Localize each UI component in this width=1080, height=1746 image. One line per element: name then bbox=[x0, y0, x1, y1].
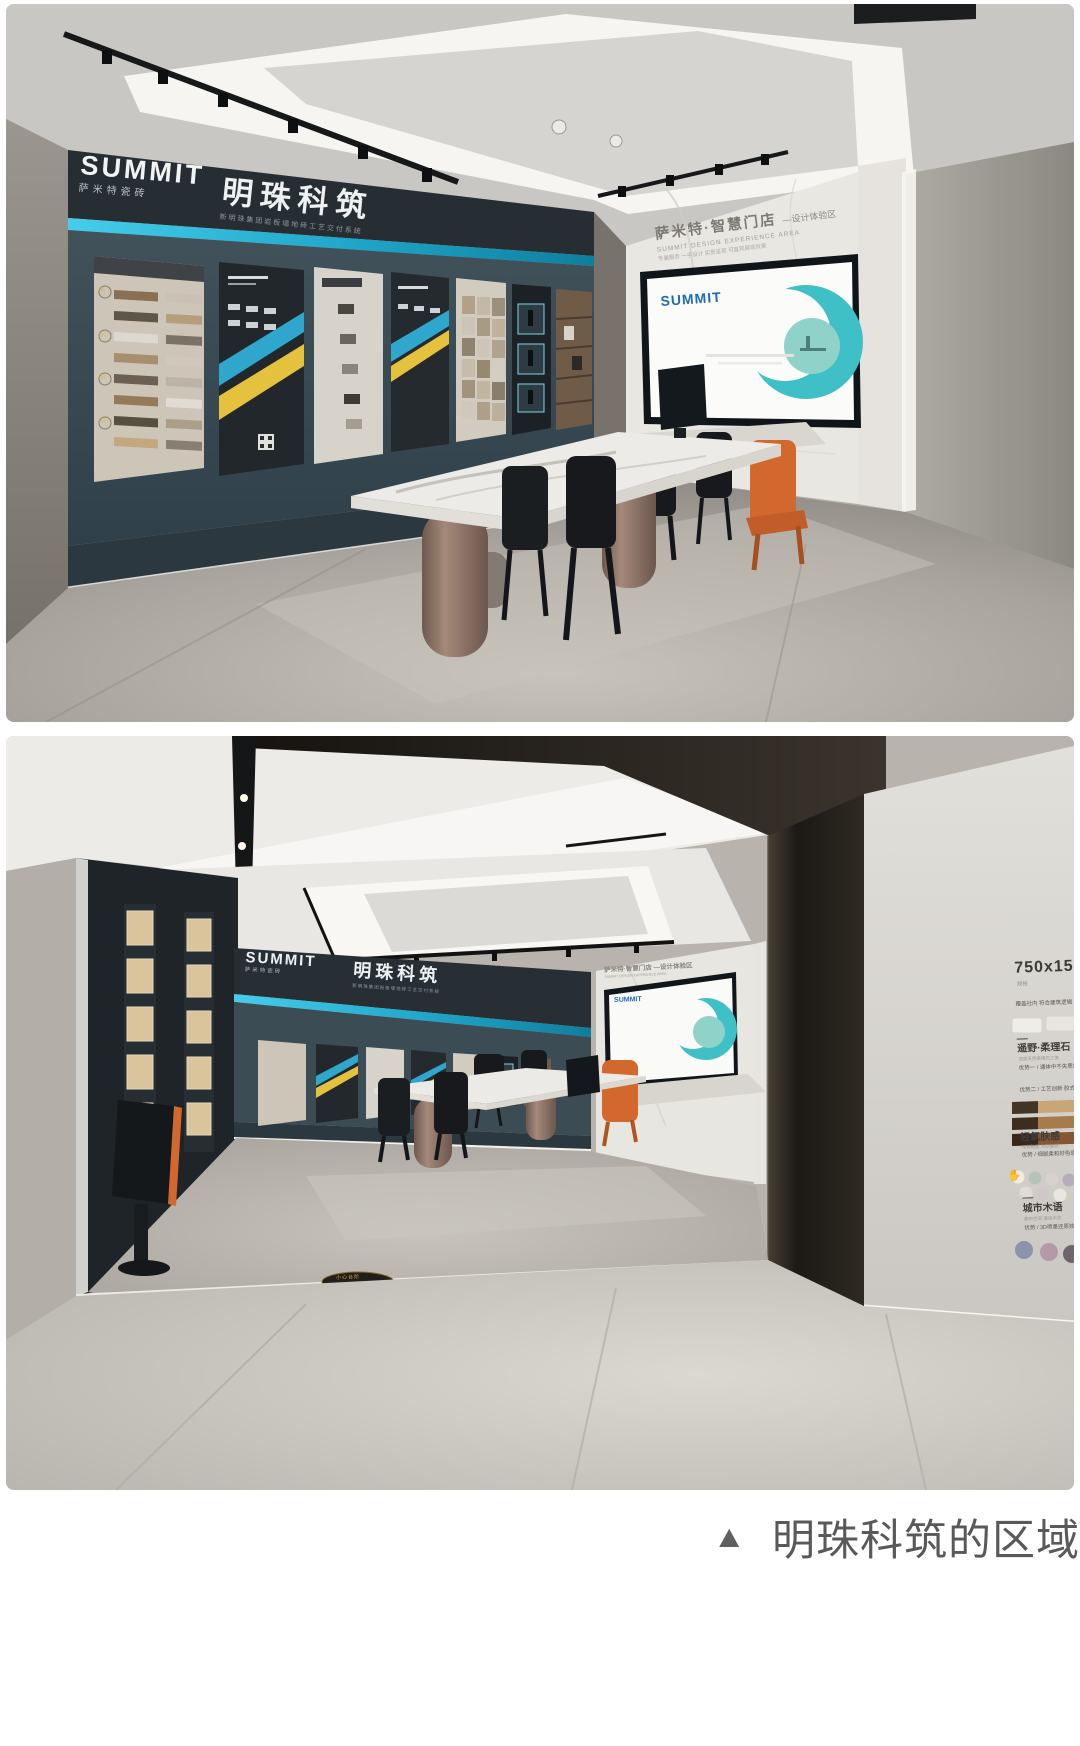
showroom-photo-1[interactable]: SUMMIT 萨米特瓷砖 明珠科筑 新明珠集团岩板墙地砖工艺交付系统 萨米特·智… bbox=[6, 4, 1074, 722]
tile-size-heading: 750x1500 bbox=[1014, 957, 1074, 978]
tv-logo-2: SUMMIT bbox=[614, 996, 642, 1005]
experience-title-suffix-2: —设计体验区 bbox=[653, 962, 692, 971]
board-number-1: 01 bbox=[99, 287, 106, 294]
triangle-marker-icon: ▲ bbox=[712, 1519, 746, 1555]
left-wall bbox=[6, 119, 68, 644]
table-base-left bbox=[422, 509, 488, 657]
right-wall bbox=[906, 142, 1074, 569]
desktop-monitor-2 bbox=[566, 1055, 600, 1097]
section3-title: 城市木语 bbox=[1023, 1202, 1063, 1215]
section2-title: 轻氧肤感 bbox=[1020, 1131, 1060, 1144]
board-number-2: 02 bbox=[99, 331, 106, 338]
experience-title-suffix: —设计体验区 bbox=[782, 209, 837, 226]
hand-icon: ✋ bbox=[1007, 1170, 1021, 1183]
tile-size-sub: 规格 bbox=[1017, 981, 1028, 988]
section1-title: 遥野·柔理石 bbox=[1017, 1042, 1071, 1055]
photo1-scene-illustration bbox=[6, 4, 1074, 722]
outer-left-wall bbox=[6, 858, 76, 1340]
photo2-scene-illustration bbox=[6, 736, 1074, 1490]
studio-sign-2: 明珠科筑 新明珠集团岩板墙地砖工艺交付系统 bbox=[352, 960, 442, 994]
article-page: SUMMIT 萨米特瓷砖 明珠科筑 新明珠集团岩板墙地砖工艺交付系统 萨米特·智… bbox=[0, 0, 1080, 1746]
showroom-photo-2[interactable]: SUMMIT 萨米特瓷砖 明珠科筑 新明珠集团岩板墙地砖工艺交付系统 萨米特·智… bbox=[6, 736, 1074, 1490]
portal-frame bbox=[768, 794, 864, 1314]
board-number-3: 03 bbox=[99, 374, 106, 381]
caption-text: 明珠科筑的区域 bbox=[772, 1506, 1080, 1568]
board-number-4: 04 bbox=[99, 418, 106, 425]
floor-sign-text: 小心台阶 bbox=[336, 1275, 360, 1282]
summit-sign-2: SUMMIT 萨米特瓷砖 bbox=[245, 949, 318, 978]
photo-caption: ▲ 明珠科筑的区域 bbox=[712, 1506, 1080, 1568]
product-wall bbox=[864, 746, 1074, 1336]
